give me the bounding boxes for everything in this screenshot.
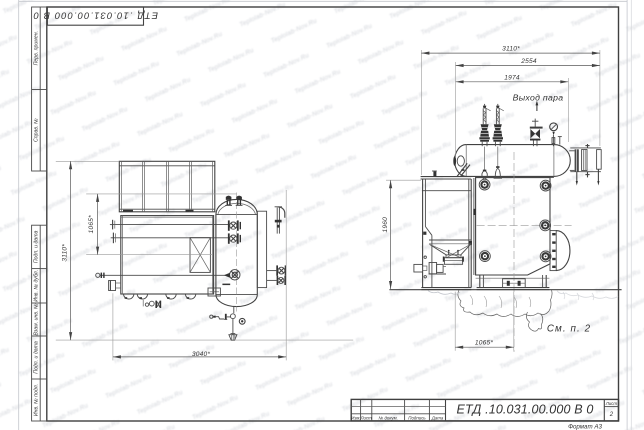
svg-text:1974: 1974 (504, 74, 520, 81)
svg-text:ЕТД .10.031.00.000 В 0: ЕТД .10.031.00.000 В 0 (33, 11, 159, 22)
svg-text:Инв. № подл.: Инв. № подл. (34, 384, 40, 416)
svg-text:Дата: Дата (431, 415, 444, 420)
svg-text:3110*: 3110* (502, 46, 520, 53)
svg-text:Взам. инв. №: Взам. инв. № (34, 303, 40, 335)
svg-text:1960: 1960 (382, 217, 389, 233)
svg-text:Перв. примен.: Перв. примен. (34, 31, 40, 65)
svg-text:3040*: 3040* (192, 351, 210, 358)
svg-text:См. п. 2: См. п. 2 (547, 324, 591, 335)
svg-text:Справ. №: Справ. № (34, 118, 40, 142)
svg-text:Подпись: Подпись (408, 415, 426, 420)
svg-text:2554: 2554 (520, 58, 537, 65)
svg-text:Инв. № дубл.: Инв. № дубл. (34, 270, 40, 302)
svg-text:2: 2 (609, 412, 614, 418)
svg-text:Выход пара: Выход пара (513, 93, 564, 103)
svg-text:3110*: 3110* (62, 244, 69, 262)
svg-text:1065*: 1065* (475, 339, 493, 346)
svg-text:Подп. и дата: Подп. и дата (34, 231, 40, 264)
svg-text:Подп. и дата: Подп. и дата (34, 341, 40, 374)
svg-text:№ докум.: № докум. (379, 415, 398, 420)
svg-text:1065*: 1065* (88, 215, 95, 233)
svg-text:ЕТД .10.031.00.000 В 0: ЕТД .10.031.00.000 В 0 (457, 403, 594, 417)
svg-text:Формат А3: Формат А3 (568, 423, 602, 430)
svg-text:Изм.: Изм. (351, 415, 360, 420)
svg-text:Лист: Лист (360, 415, 373, 420)
svg-text:Лист: Лист (605, 401, 618, 406)
